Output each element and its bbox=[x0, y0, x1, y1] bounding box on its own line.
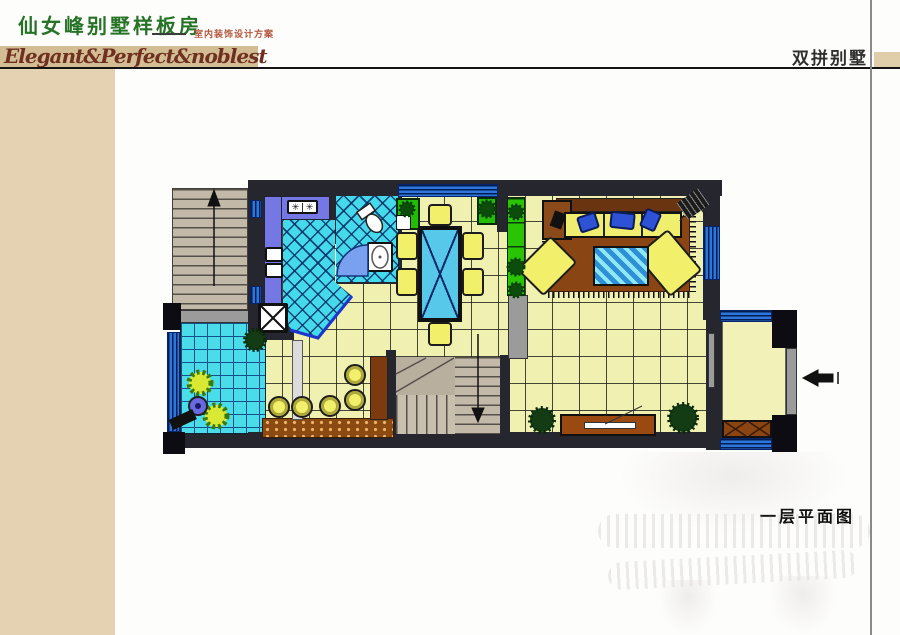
porch-window-bottom bbox=[720, 438, 772, 450]
header-rule bbox=[0, 67, 900, 69]
sofa-pillow bbox=[609, 211, 636, 231]
header-tan-block bbox=[874, 52, 900, 67]
watermark-edge-strip bbox=[874, 395, 900, 635]
floor-plan: ✳✳ bbox=[150, 168, 850, 468]
watermark-leg bbox=[768, 576, 838, 635]
kitchen-window-upper bbox=[250, 200, 262, 218]
left-beige-sidebar bbox=[0, 69, 115, 635]
porch-corner-top bbox=[772, 310, 797, 348]
tv bbox=[584, 422, 636, 429]
stove-burner-icon: ✳ bbox=[302, 203, 316, 212]
duct-shaft bbox=[258, 303, 288, 333]
porch-corner-bottom bbox=[772, 415, 797, 452]
terrace-window bbox=[167, 332, 180, 432]
presentation-sheet: 仙女峰别墅样板房 室内装饰设计方案 Elegant&Perfect&nobles… bbox=[0, 0, 900, 635]
stair-flight-main bbox=[455, 357, 500, 434]
dining-chair bbox=[396, 268, 418, 296]
rug-fringe-right bbox=[690, 216, 696, 292]
wall-right-mid bbox=[703, 280, 720, 320]
project-type-label: 双拼别墅 bbox=[792, 44, 868, 69]
watermark-ruffle bbox=[607, 549, 858, 590]
stair-winders bbox=[396, 357, 455, 395]
porch-wall-inner bbox=[708, 333, 715, 388]
wall-stairs-right bbox=[500, 355, 510, 440]
planter-right bbox=[477, 197, 497, 225]
dining-chair bbox=[428, 322, 452, 346]
terrace-corner-top bbox=[163, 303, 181, 330]
stove-burner-icon: ✳ bbox=[289, 203, 302, 212]
entry-arrow bbox=[803, 370, 838, 386]
exterior-staircase bbox=[172, 188, 248, 310]
porch-bench bbox=[722, 420, 772, 438]
plan-caption: 一层平面图 bbox=[760, 503, 855, 527]
dining-chair bbox=[396, 232, 418, 260]
right-border-line bbox=[870, 0, 872, 635]
living-window bbox=[703, 226, 720, 280]
dining-window bbox=[398, 184, 498, 197]
watermark-furniture-photo bbox=[598, 452, 870, 635]
stove: ✳✳ bbox=[287, 200, 318, 214]
page-subtitle: 室内装饰设计方案 bbox=[194, 27, 274, 40]
bar-stool bbox=[344, 364, 366, 386]
kitchen-appliance bbox=[265, 263, 283, 278]
bar-stool bbox=[291, 396, 313, 418]
bar-stool bbox=[268, 396, 290, 418]
dining-chair bbox=[462, 232, 484, 260]
title-dash bbox=[152, 33, 186, 35]
stair-landing bbox=[172, 310, 250, 323]
terrace-corner-bottom bbox=[163, 432, 185, 454]
dining-chair bbox=[462, 268, 484, 296]
coffee-table bbox=[593, 246, 649, 286]
partition-low-wall bbox=[508, 295, 528, 359]
planter-strip bbox=[507, 197, 525, 296]
watermark-leg bbox=[658, 580, 718, 635]
wall-terrace-bottom bbox=[178, 434, 250, 448]
tagline-text: Elegant&Perfect&noblest bbox=[4, 44, 258, 68]
dining-table bbox=[418, 226, 462, 322]
bar-stool bbox=[319, 395, 341, 417]
porch-wall-right bbox=[786, 348, 797, 415]
kitchen-sink-unit bbox=[265, 247, 283, 262]
bar-counter-top bbox=[262, 418, 394, 438]
porch-window-top bbox=[720, 310, 772, 322]
kitchen-window-lower bbox=[250, 286, 262, 304]
dining-chair bbox=[428, 204, 452, 226]
sofa-back bbox=[556, 198, 688, 212]
tv-cabinet bbox=[560, 414, 656, 436]
bathroom-vanity bbox=[367, 242, 393, 272]
stair-flight-lower bbox=[396, 395, 455, 434]
stove-burners: ✳✳ bbox=[289, 202, 316, 212]
bar-counter-side bbox=[370, 356, 388, 420]
dining-side-unit bbox=[396, 215, 411, 230]
bar-stool bbox=[344, 389, 366, 411]
